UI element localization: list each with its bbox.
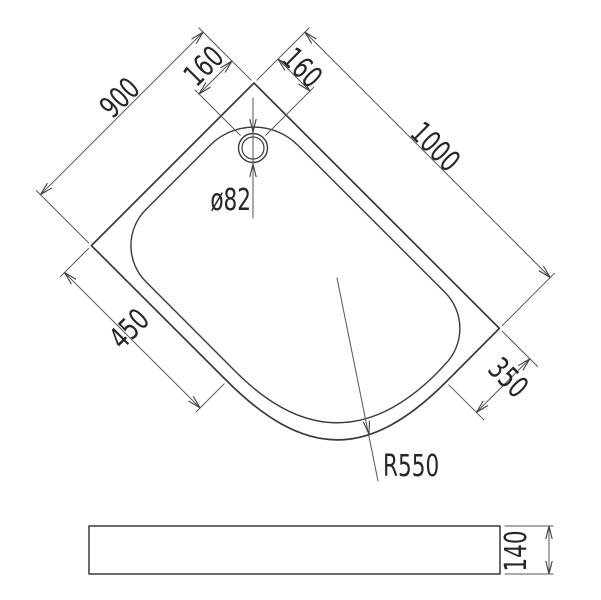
- ext-drain-left: [195, 90, 240, 135]
- label-1000: 1000: [403, 116, 466, 179]
- label-160-right: 160: [275, 42, 328, 95]
- side-view: 140: [89, 526, 553, 574]
- label-drain-diameter: ø82: [210, 184, 251, 218]
- label-450: 450: [103, 303, 156, 356]
- ext-350-end: [449, 385, 484, 420]
- label-350: 350: [481, 352, 534, 405]
- side-profile-rect: [89, 526, 500, 574]
- plan-dimension-labels: 900 160 160 1000 ø82 450 350 R550: [94, 40, 534, 484]
- label-corner-radius: R550: [383, 450, 439, 484]
- ext-drain-right: [266, 87, 314, 135]
- tray-inner-outline: [131, 127, 460, 423]
- radius-leader-line: [337, 278, 378, 481]
- technical-drawing-page: 900 160 160 1000 ø82 450 350 R550 140: [0, 0, 601, 600]
- plan-view: 900 160 160 1000 ø82 450 350 R550: [36, 28, 554, 484]
- label-900: 900: [94, 72, 147, 125]
- label-160-left: 160: [178, 40, 231, 93]
- ext-left-corner-up: [36, 191, 88, 243]
- shower-tray-drawing: 900 160 160 1000 ø82 450 350 R550 140: [0, 0, 601, 600]
- label-140: 140: [500, 530, 534, 571]
- ext-right-corner-up: [502, 273, 554, 325]
